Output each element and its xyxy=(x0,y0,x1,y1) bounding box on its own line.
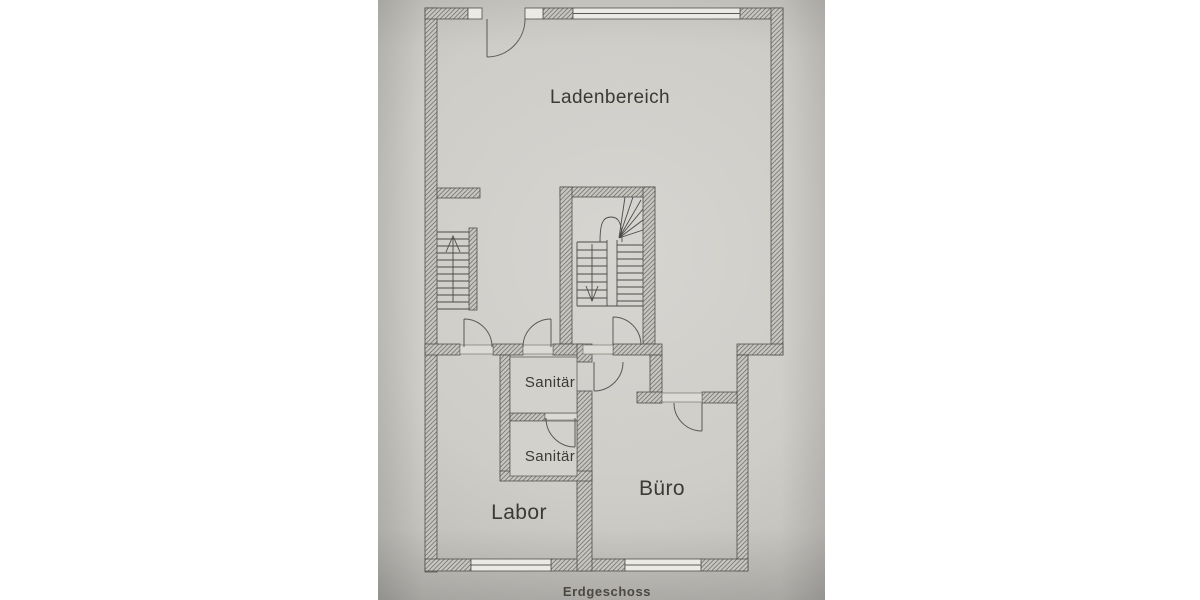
main-staircase xyxy=(577,197,643,306)
wall-segment xyxy=(771,8,783,355)
wall-segment xyxy=(425,344,460,355)
wall-segment xyxy=(560,187,572,344)
door-swing-stairwell xyxy=(613,317,641,345)
room-label-labor: Labor xyxy=(491,501,547,524)
wall-segment xyxy=(560,187,655,197)
stair-treads-right-flight xyxy=(617,245,643,301)
wall-segment xyxy=(500,355,510,476)
room-label-sanitaer-1: Sanitär xyxy=(525,374,575,391)
door-swing-buero xyxy=(674,403,702,431)
wall-segment xyxy=(425,8,437,572)
door-swing-sanitaer-1 xyxy=(523,319,551,347)
door-swing-entry xyxy=(487,19,525,57)
stair-winder-fan xyxy=(619,197,643,238)
threshold xyxy=(460,345,493,354)
wall-segment xyxy=(469,228,477,310)
floor-plan-caption: Erdgeschoss xyxy=(563,584,651,599)
room-label-sanitaer-2: Sanitär xyxy=(525,448,575,465)
stair-newel-divider xyxy=(607,240,617,306)
interior-walls xyxy=(425,187,737,571)
floor-plan-photo: Ladenbereich Sanitär Sanitär Labor Büro … xyxy=(378,0,825,600)
small-staircase xyxy=(437,232,469,309)
wall-segment xyxy=(437,188,480,198)
wall-segment xyxy=(637,392,662,403)
threshold xyxy=(523,345,553,354)
door-swing-labor xyxy=(464,319,492,347)
wall-segment xyxy=(425,559,471,571)
stair-direction-arrow-down xyxy=(586,244,598,301)
wall-segment xyxy=(493,344,523,355)
door-swing-vestibule xyxy=(594,362,623,391)
floor-plan-drawing: Ladenbereich Sanitär Sanitär Labor Büro … xyxy=(378,0,825,600)
wall-segment xyxy=(701,559,748,571)
wall-segment xyxy=(510,413,545,421)
window xyxy=(525,8,543,19)
threshold xyxy=(662,393,702,402)
wall-segment xyxy=(613,344,662,355)
wall-segment xyxy=(643,187,655,344)
stair-winder-dome xyxy=(600,217,622,242)
threshold xyxy=(545,413,577,420)
wall-segment xyxy=(702,392,737,403)
threshold xyxy=(583,345,613,354)
wall-segment xyxy=(543,8,573,19)
wall-segment xyxy=(737,355,748,571)
screenshot-root: Ladenbereich Sanitär Sanitär Labor Büro … xyxy=(0,0,1200,600)
room-label-ladenbereich: Ladenbereich xyxy=(550,87,670,108)
room-label-buero: Büro xyxy=(639,477,685,500)
window xyxy=(468,8,482,19)
wall-segment xyxy=(737,344,783,355)
wall-segment xyxy=(425,8,468,19)
